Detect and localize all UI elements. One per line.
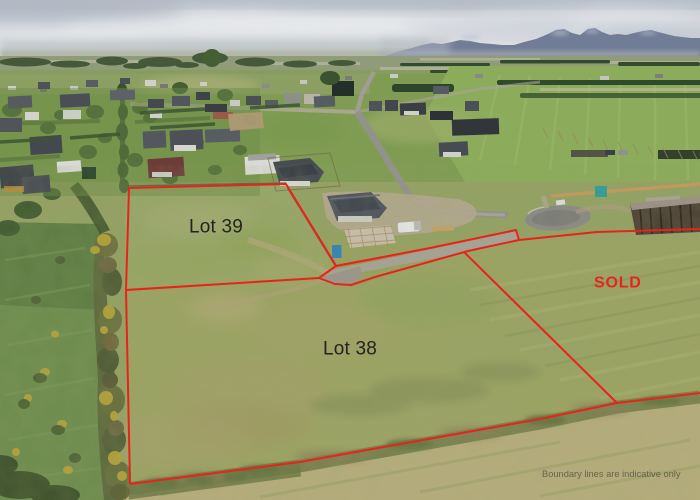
svg-text:SOLD: SOLD <box>594 275 642 292</box>
svg-text:Lot 38: Lot 38 <box>323 339 377 360</box>
svg-text:Boundary lines are indicative: Boundary lines are indicative only <box>542 469 681 479</box>
svg-text:Lot 39: Lot 39 <box>189 217 243 238</box>
